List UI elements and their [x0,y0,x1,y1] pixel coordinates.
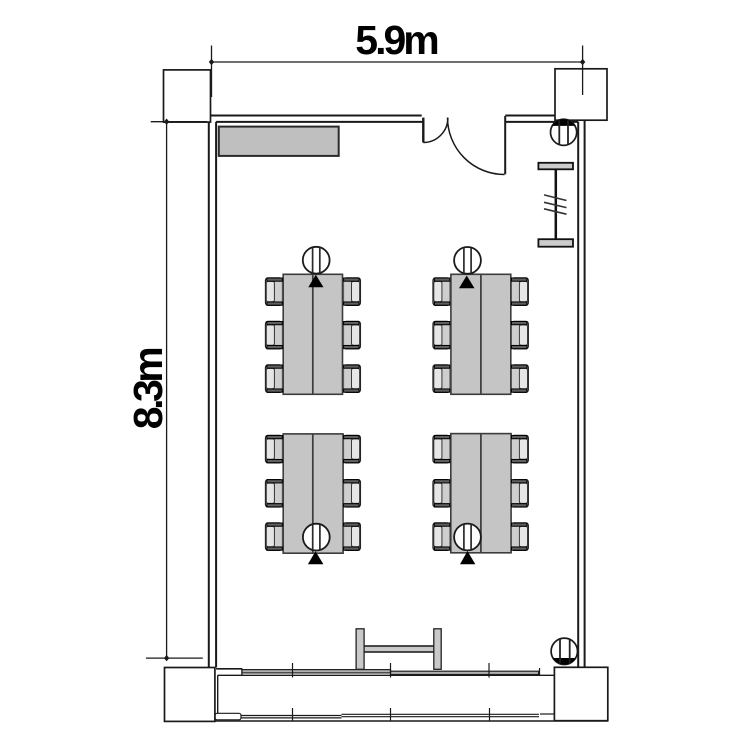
svg-text:5.9m: 5.9m [355,17,437,63]
svg-text:8.3m: 8.3m [125,349,171,429]
